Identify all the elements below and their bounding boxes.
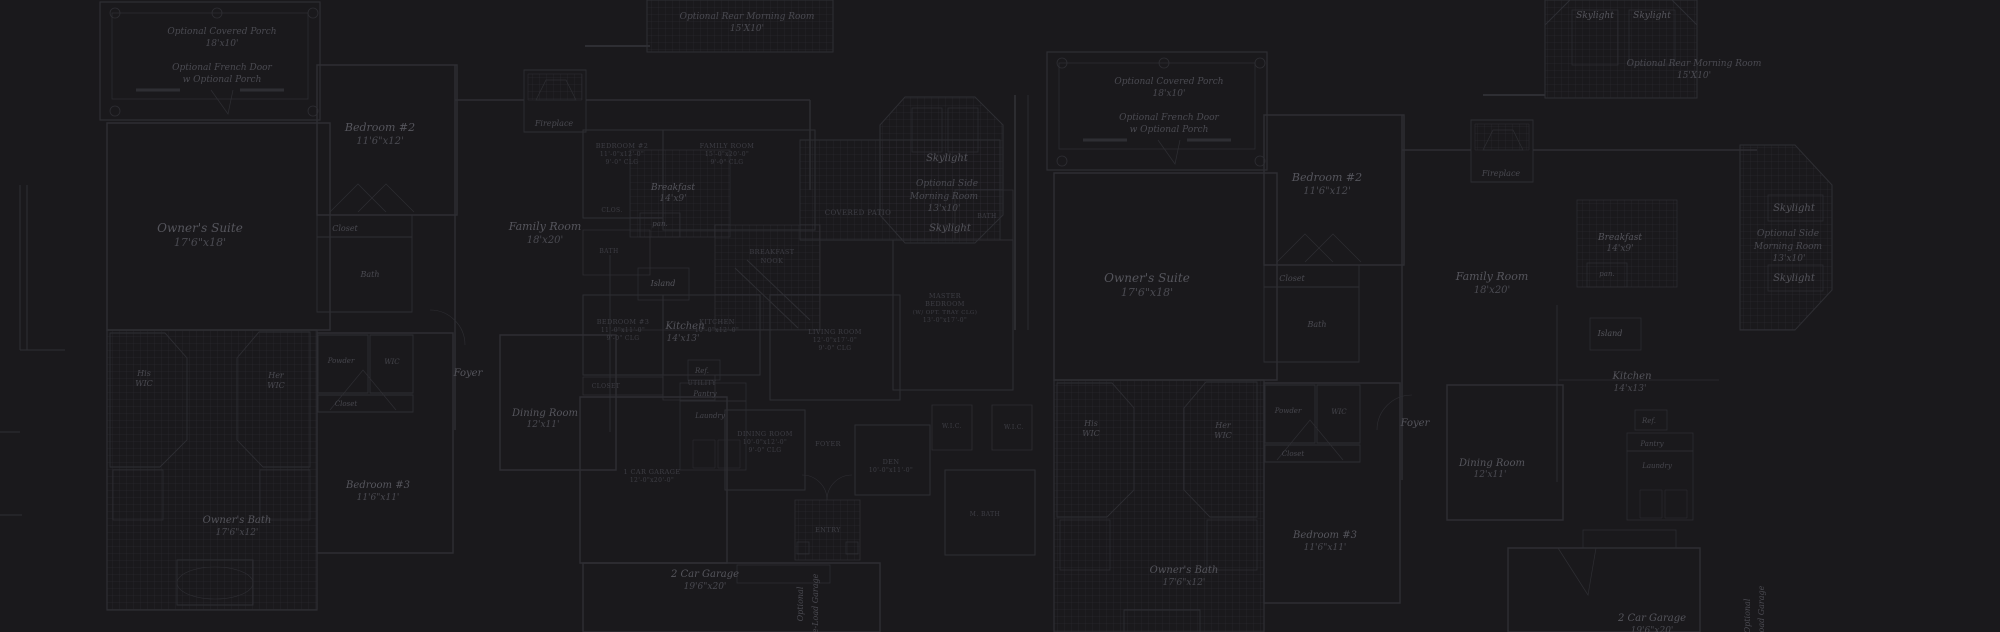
room-label: ENTRY [815,526,841,534]
room-label: 14'x13' [667,334,700,344]
room-label: Breakfast [1597,233,1642,243]
room-label: Optional Side [916,179,978,189]
room-label: Optional Side [1757,229,1819,239]
room-label: Closet [1279,274,1305,283]
room-label: Closet [335,400,358,408]
room-label: 12'-0"x17'-0" [813,337,857,344]
room-label: Skylight [926,153,969,164]
room-label: 14'x9' [1606,244,1633,254]
room-label: 14'x13' [1614,384,1647,394]
room-label: 15'-0"x20'-0" [705,151,749,158]
room-label: Foyer [453,368,484,379]
room-label: Her [1214,421,1232,430]
room-label: 13'x10' [1773,254,1806,264]
floorplan-background: Optional Covered Porch18'x10'Optional Fr… [0,0,2000,632]
room-label: DEN [883,458,900,466]
room-label: Skylight [929,223,972,234]
room-label: UTILITY [688,380,717,387]
room-label: W.I.C. [1004,424,1024,431]
room-label: 1 CAR GARAGE [623,468,680,476]
room-label: Her [267,371,285,380]
room-label: 11'-0"x11'-0" [601,327,645,334]
room-label: MASTER [929,292,962,300]
room-label: WIC [1331,408,1347,416]
room-label: Side-Load Garage [811,573,820,632]
room-label: 11'6"x12' [356,136,404,147]
room-label: Fireplace [534,119,574,128]
room-label: Skylight [1633,11,1671,21]
room-label: Bedroom #2 [344,121,415,134]
room-label: 9'-0" CLG [606,159,639,166]
wall-path [1545,0,1697,98]
room-label: Bedroom #2 [1291,171,1362,184]
room-label: 14'x9' [659,194,686,204]
room-label: Breakfast [650,183,695,193]
room-label: Ref. [1641,417,1656,425]
room-label: 12'x11' [1474,470,1507,480]
room-label: Skylight [1576,11,1614,21]
room-label: 11'-0"x12'-0" [600,151,644,158]
room-label: WIC [267,381,285,390]
room-label: WIC [135,379,153,388]
room-label: w Optional Porch [1130,125,1209,135]
room-label: BREAKFAST [750,248,795,256]
room-label: Dining Room [1458,458,1525,469]
room-label: LIVING ROOM [808,328,862,336]
room-label: Bath [1306,320,1326,329]
room-label: His [1083,419,1098,428]
room-label: 18'x10' [1153,89,1186,99]
room-label: 17'6"x18' [1121,286,1173,299]
room-label: Optional French Door [172,63,272,73]
room-label: Optional Rear Morning Room [680,12,815,22]
room-label: Owner's Suite [157,221,243,235]
room-label: 17'6"x18' [174,236,226,249]
room-label: 11'6"x12' [1303,186,1351,197]
room-label: 13'-0"x17'-0" [923,317,967,324]
room-label: Optional Covered Porch [1114,77,1223,87]
room-label: 18'x10' [206,39,239,49]
room-label: Skylight [1773,203,1816,214]
room-label: 9'-0" CLG [819,345,852,352]
room-label: Foyer [1400,418,1431,429]
room-label: Kitchen [1611,371,1651,382]
room-label: Optional Rear Morning Room [1627,59,1762,69]
floorplan-canvas: Optional Covered Porch18'x10'Optional Fr… [0,0,2000,632]
room-label: 2 Car Garage [1617,613,1686,624]
room-label: FOYER [815,440,841,448]
room-label: Closet [332,224,358,233]
room-label: 9'-0" CLG [607,335,640,342]
room-label: 18'x20' [1474,285,1511,296]
room-label: Optional [1743,598,1752,632]
room-label: 10'-0"x12'-0" [743,439,787,446]
room-label: 18'x20' [527,235,564,246]
room-label: Pantry [1639,440,1664,448]
room-label: 9'-0" CLG [711,159,744,166]
room-label: pan. [1599,270,1614,278]
room-label: 12'x11' [527,420,560,430]
room-label: Family Room [1455,270,1529,283]
room-label: FAMILY ROOM [700,142,755,150]
room-label: KITCHEN [699,318,735,326]
room-label: Pantry [692,390,717,398]
room-label: Optional French Door [1119,113,1219,123]
room-label: w Optional Porch [183,75,262,85]
room-label: W.I.C. [942,423,962,430]
room-label: BATH [977,213,996,220]
wall-path [1054,380,1264,632]
room-label: Laundry [694,412,726,420]
room-label: Owner's Bath [1150,565,1219,576]
room-label: Bath [359,270,379,279]
room-label: M. BATH [970,511,1000,518]
room-label: (W/ OPT. TRAY CLG) [913,309,978,316]
room-label: BEDROOM #3 [597,318,650,326]
room-label: 11'6"x11' [1304,543,1347,553]
room-label: 15'X10' [730,24,764,34]
room-label: 9'-0" CLG [749,447,782,454]
room-label: 12'-0"x20'-0" [630,477,674,484]
room-label: Laundry [1641,462,1673,470]
room-label: CLOS. [601,207,622,214]
room-label: Bedroom #3 [345,480,410,491]
room-label: Side-Load Garage [1757,585,1766,632]
room-label: 19'6"x20' [1631,626,1674,632]
room-label: 17'6"x12' [1163,578,1206,588]
room-label: Owner's Bath [203,515,272,526]
room-label: 15'X10' [1677,71,1711,81]
room-label: COVERED PATIO [825,209,891,217]
room-label: 13'x10' [928,204,961,214]
room-label: Fireplace [1481,169,1521,178]
room-label: Optional [796,586,805,621]
room-label: Family Room [508,220,582,233]
room-label: Morning Room [909,192,978,202]
room-label: Bedroom #3 [1292,530,1357,541]
room-label: Island [650,279,676,288]
room-label: His [136,369,151,378]
room-label: Closet [1282,450,1305,458]
room-label: BEDROOM [925,300,965,308]
room-label: Ref. [694,367,709,375]
room-label: 11'6"x11' [357,493,400,503]
room-label: 19'6"x20' [684,582,727,592]
room-label: WIC [1214,431,1232,440]
room-label: Powder [327,357,355,365]
room-label: Dining Room [511,408,578,419]
room-label: BEDROOM #2 [596,142,649,150]
room-label: Optional Covered Porch [167,27,276,37]
room-label: Morning Room [1753,242,1822,252]
room-label: 10'-0"x12'-0" [695,327,739,334]
room-label: WIC [384,358,400,366]
room-label: DINING ROOM [737,430,793,438]
room-label: Owner's Suite [1104,271,1190,285]
room-label: BATH [599,248,618,255]
room-label: Skylight [1773,273,1816,284]
room-label: 10'-0"x11'-0" [869,467,913,474]
room-label: 17'6"x12' [216,528,259,538]
room-label: WIC [1082,429,1100,438]
room-label: 2 Car Garage [670,569,739,580]
room-label: Island [1597,329,1623,338]
room-label: NOOK [761,257,784,265]
room-label: CLOSET [592,383,620,390]
room-label: Powder [1274,407,1302,415]
room-label: pan. [652,220,667,228]
